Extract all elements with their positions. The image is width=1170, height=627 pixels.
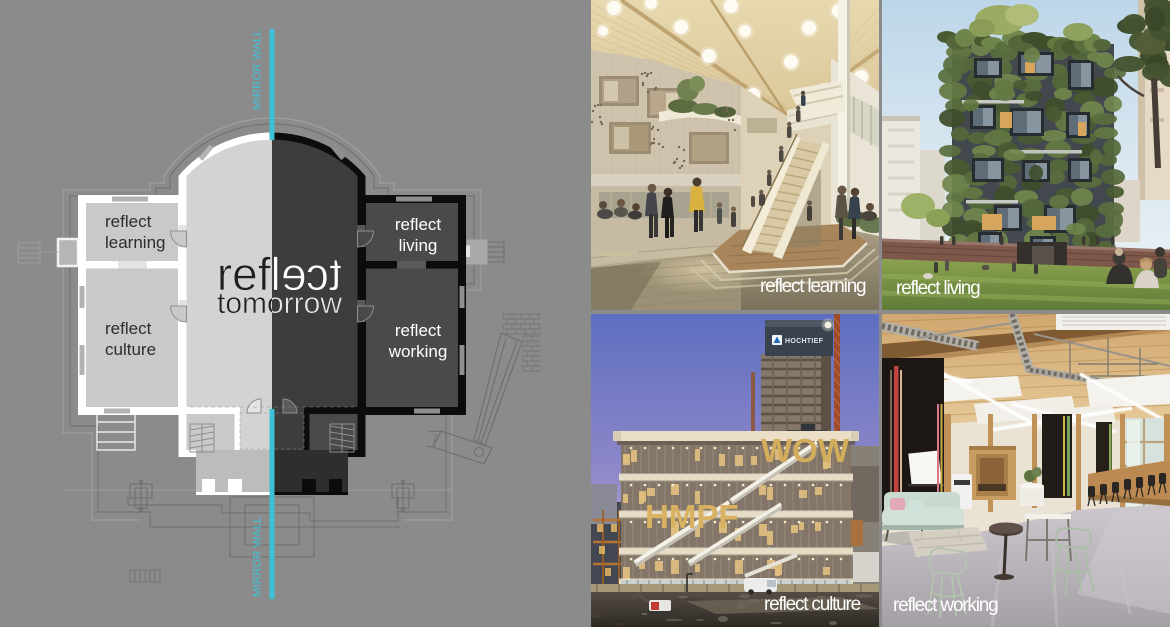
svg-text:MIRROR WALL: MIRROR WALL <box>252 516 264 597</box>
svg-text:HMPF: HMPF <box>645 498 739 535</box>
svg-text:MIRROR WALL: MIRROR WALL <box>252 29 264 110</box>
svg-text:WOW: WOW <box>761 432 850 469</box>
svg-text:HOCHTIEF: HOCHTIEF <box>785 338 824 345</box>
